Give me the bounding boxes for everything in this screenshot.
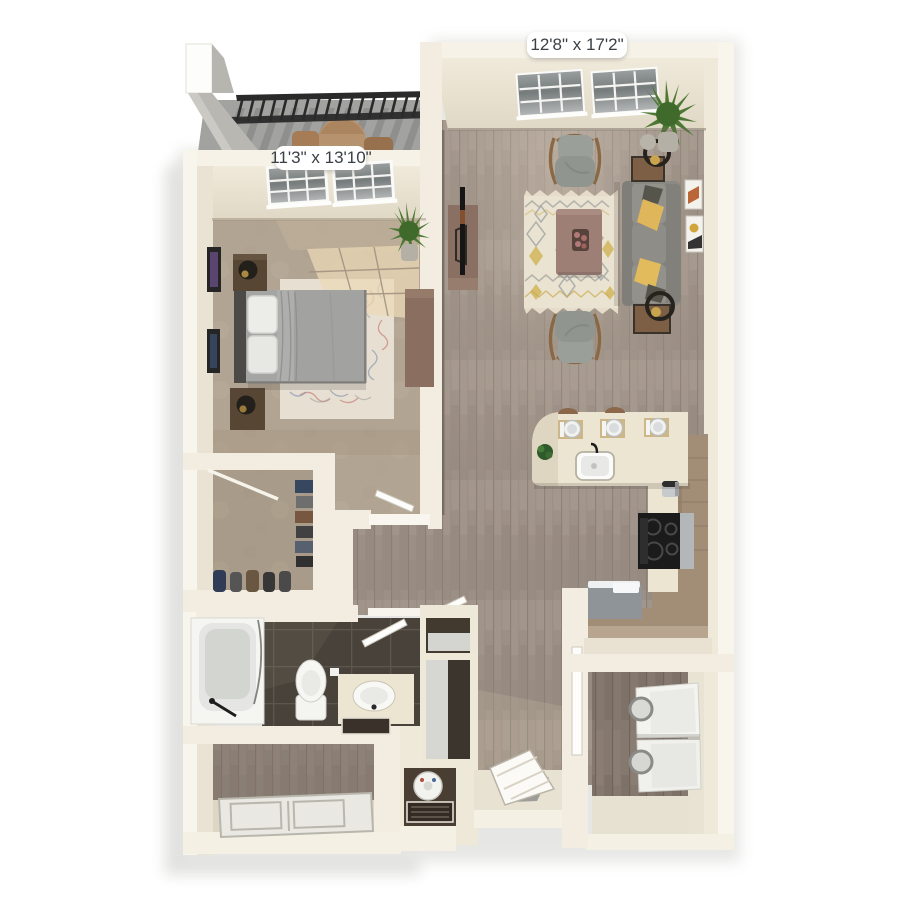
- svg-text:12'8" x 17'2": 12'8" x 17'2": [530, 35, 623, 54]
- svg-text:11'3" x 13'10": 11'3" x 13'10": [270, 148, 371, 167]
